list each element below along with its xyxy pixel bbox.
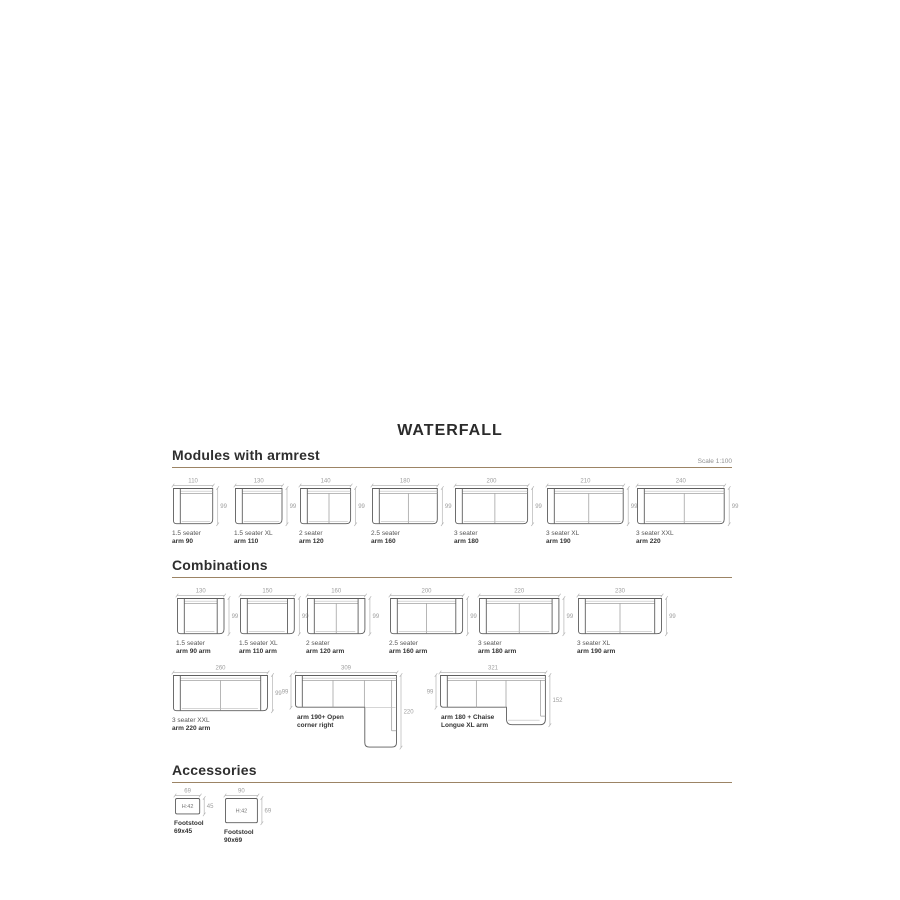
sofa-topview-drawing: 18099: [371, 477, 452, 528]
sofa-module-diagram: 180992.5 seaterarm 160: [371, 477, 452, 546]
dim-width-label: 260: [215, 666, 226, 672]
diagram-label-line2: corner right: [297, 722, 344, 730]
sofa-topview-drawing: 11099: [172, 477, 228, 528]
diagram-name: 1.5 seater XL: [239, 640, 309, 648]
dim-depth-label: 99: [232, 614, 239, 620]
diagram-name: 2.5 seater: [389, 640, 478, 648]
diagram-name: 3 seater XXL: [172, 717, 282, 725]
diagram-name: 3 seater XL: [577, 640, 677, 648]
diagram-label: 2.5 seaterarm 160: [371, 530, 452, 546]
sofa-topview-drawing: 20099: [389, 587, 478, 638]
footstool-height-label: H:42: [182, 804, 194, 810]
sofa-combination-diagram: 260993 seater XXLarm 220 arm: [172, 664, 282, 733]
footstool-diagram: 6945H:42Footstool69x45: [174, 787, 215, 836]
dim-depth-label: 99: [445, 504, 452, 510]
dim-width-label: 140: [321, 479, 332, 485]
diagram-label: 2 seaterarm 120: [299, 530, 366, 546]
sofa-topview-drawing: 16099: [306, 587, 380, 638]
diagram-name: 3 seater: [454, 530, 543, 538]
diagram-size: arm 190: [546, 538, 638, 546]
dim-depth-label: 99: [567, 614, 574, 620]
diagram-label: 2 seaterarm 120 arm: [306, 640, 380, 656]
diagram-size: arm 110: [234, 538, 297, 546]
dim-width-label: 110: [188, 479, 198, 485]
dim-depth-label: 152: [553, 698, 564, 704]
diagram-size: arm 180 arm: [478, 648, 574, 656]
sofa-topview-drawing: 15099: [239, 587, 309, 638]
diagram-name: 1.5 seater: [176, 640, 239, 648]
sofa-topview-drawing: 22099: [478, 587, 574, 638]
dim-depth-label: 99: [732, 504, 739, 510]
dim-width-label: 160: [331, 589, 342, 595]
dim-depth-label: 99: [373, 614, 380, 620]
dim-width-label: 230: [615, 589, 626, 595]
dim-depth-label: 99: [290, 504, 297, 510]
sofa-topview-drawing: 13099: [176, 587, 239, 638]
dim-width-label: 150: [262, 589, 273, 595]
diagram-name: 1.5 seater XL: [234, 530, 297, 538]
dim-depth-label: 99: [282, 689, 289, 695]
dim-width-label: 69: [184, 789, 191, 795]
sofa-combination-diagram: 200992.5 seaterarm 160 arm: [389, 587, 478, 656]
diagram-size: arm 90 arm: [176, 648, 239, 656]
sofa-topview-drawing: 24099: [636, 477, 739, 528]
sofa-combination-diagram: 130991.5 seaterarm 90 arm: [176, 587, 239, 656]
dim-width-label: 210: [580, 479, 591, 485]
sofa-module-diagram: 240993 seater XXLarm 220: [636, 477, 739, 546]
diagram-name: 2 seater: [306, 640, 380, 648]
sofa-module-diagram: 140992 seaterarm 120: [299, 477, 366, 546]
diagram-size: 69x45: [174, 828, 215, 836]
footstool-diagram: 9069H:42Footstool90x69: [224, 787, 272, 845]
diagram-label: 3 seaterarm 180: [454, 530, 543, 546]
dim-depth-label: 99: [427, 689, 434, 695]
dim-depth-label: 99: [669, 614, 676, 620]
diagram-label: 3 seater XLarm 190 arm: [577, 640, 677, 656]
sofa-topview-drawing: 6945H:42: [174, 787, 215, 818]
diagram-label: 3 seater XXLarm 220 arm: [172, 717, 282, 733]
diagram-label-line1: arm 190+ Open: [297, 714, 344, 722]
diagram-size: arm 90: [172, 538, 228, 546]
diagram-name: 3 seater: [478, 640, 574, 648]
sofa-topview-drawing: 20099: [454, 477, 543, 528]
sofa-combination-diagram: 220993 seaterarm 180 arm: [478, 587, 574, 656]
diagram-name: 2 seater: [299, 530, 366, 538]
diagram-label: Footstool69x45: [174, 820, 215, 836]
diagram-size: arm 160: [371, 538, 452, 546]
diagram-label: 2.5 seaterarm 160 arm: [389, 640, 478, 656]
sofa-combination-diagram: 150991.5 seater XLarm 110 arm: [239, 587, 309, 656]
diagram-name: 3 seater XL: [546, 530, 638, 538]
diagram-label-line2: Longue XL arm: [441, 722, 494, 730]
diagram-label: 1.5 seater XLarm 110: [234, 530, 297, 546]
diagram-label: 3 seaterarm 180 arm: [478, 640, 574, 656]
diagram-size: arm 220 arm: [172, 725, 282, 733]
diagram-name: 3 seater XXL: [636, 530, 739, 538]
diagram-label-line1: arm 180 + Chaise: [441, 714, 494, 722]
diagram-label: arm 190+ Opencorner right: [297, 714, 344, 730]
diagram-name: 1.5 seater: [172, 530, 228, 538]
dim-depth-label: 220: [404, 709, 415, 715]
dim-width-label: 220: [514, 589, 525, 595]
diagrams-layer: 110991.5 seaterarm 90130991.5 seater XLa…: [0, 0, 900, 900]
diagram-size: arm 120: [299, 538, 366, 546]
open-corner-combination-diagram: 30999220arm 190+ Opencorner right: [283, 664, 411, 751]
diagram-size: arm 110 arm: [239, 648, 309, 656]
dim-depth-label: 45: [207, 804, 214, 810]
diagram-name: Footstool: [224, 829, 272, 837]
footstool-height-label: H:42: [236, 809, 248, 815]
sofa-topview-drawing: 23099: [577, 587, 677, 638]
dim-width-label: 130: [254, 479, 265, 485]
diagram-label: 1.5 seaterarm 90 arm: [176, 640, 239, 656]
dim-width-label: 180: [400, 479, 411, 485]
sofa-module-diagram: 210993 seater XLarm 190: [546, 477, 638, 546]
catalog-page: { "page": { "title": "WATERFALL", "scale…: [0, 0, 900, 900]
diagram-size: arm 160 arm: [389, 648, 478, 656]
sofa-topview-drawing: 26099: [172, 664, 282, 715]
diagram-name: Footstool: [174, 820, 215, 828]
chaise-longue-combination-diagram: 32199152arm 180 + ChaiseLongue XL arm: [428, 664, 560, 729]
diagram-label: arm 180 + ChaiseLongue XL arm: [441, 714, 494, 730]
diagram-label: 1.5 seaterarm 90: [172, 530, 228, 546]
dim-width-label: 200: [421, 589, 432, 595]
diagram-label: Footstool90x69: [224, 829, 272, 845]
diagram-label: 3 seater XXLarm 220: [636, 530, 739, 546]
diagram-label: 3 seater XLarm 190: [546, 530, 638, 546]
dim-depth-label: 99: [358, 504, 365, 510]
dim-width-label: 130: [196, 589, 207, 595]
dim-depth-label: 69: [265, 809, 272, 815]
diagram-name: 2.5 seater: [371, 530, 452, 538]
sofa-combination-diagram: 160992 seaterarm 120 arm: [306, 587, 380, 656]
dim-depth-label: 99: [470, 614, 477, 620]
dim-width-label: 200: [486, 479, 497, 485]
dim-width-label: 240: [676, 479, 687, 485]
sofa-module-diagram: 200993 seaterarm 180: [454, 477, 543, 546]
dim-width-label: 309: [341, 666, 352, 672]
dim-width-label: 321: [488, 666, 499, 672]
sofa-topview-drawing: 9069H:42: [224, 787, 272, 827]
diagram-size: 90x69: [224, 837, 272, 845]
sofa-module-diagram: 130991.5 seater XLarm 110: [234, 477, 297, 546]
diagram-size: arm 120 arm: [306, 648, 380, 656]
diagram-size: arm 180: [454, 538, 543, 546]
sofa-module-diagram: 110991.5 seaterarm 90: [172, 477, 228, 546]
sofa-topview-drawing: 21099: [546, 477, 638, 528]
sofa-topview-drawing: 30999220: [283, 664, 411, 751]
diagram-label: 1.5 seater XLarm 110 arm: [239, 640, 309, 656]
sofa-topview-drawing: 14099: [299, 477, 366, 528]
dim-depth-label: 99: [535, 504, 542, 510]
sofa-combination-diagram: 230993 seater XLarm 190 arm: [577, 587, 677, 656]
dim-depth-label: 99: [220, 504, 227, 510]
diagram-size: arm 220: [636, 538, 739, 546]
sofa-topview-drawing: 13099: [234, 477, 297, 528]
dim-width-label: 90: [238, 789, 245, 795]
diagram-size: arm 190 arm: [577, 648, 677, 656]
